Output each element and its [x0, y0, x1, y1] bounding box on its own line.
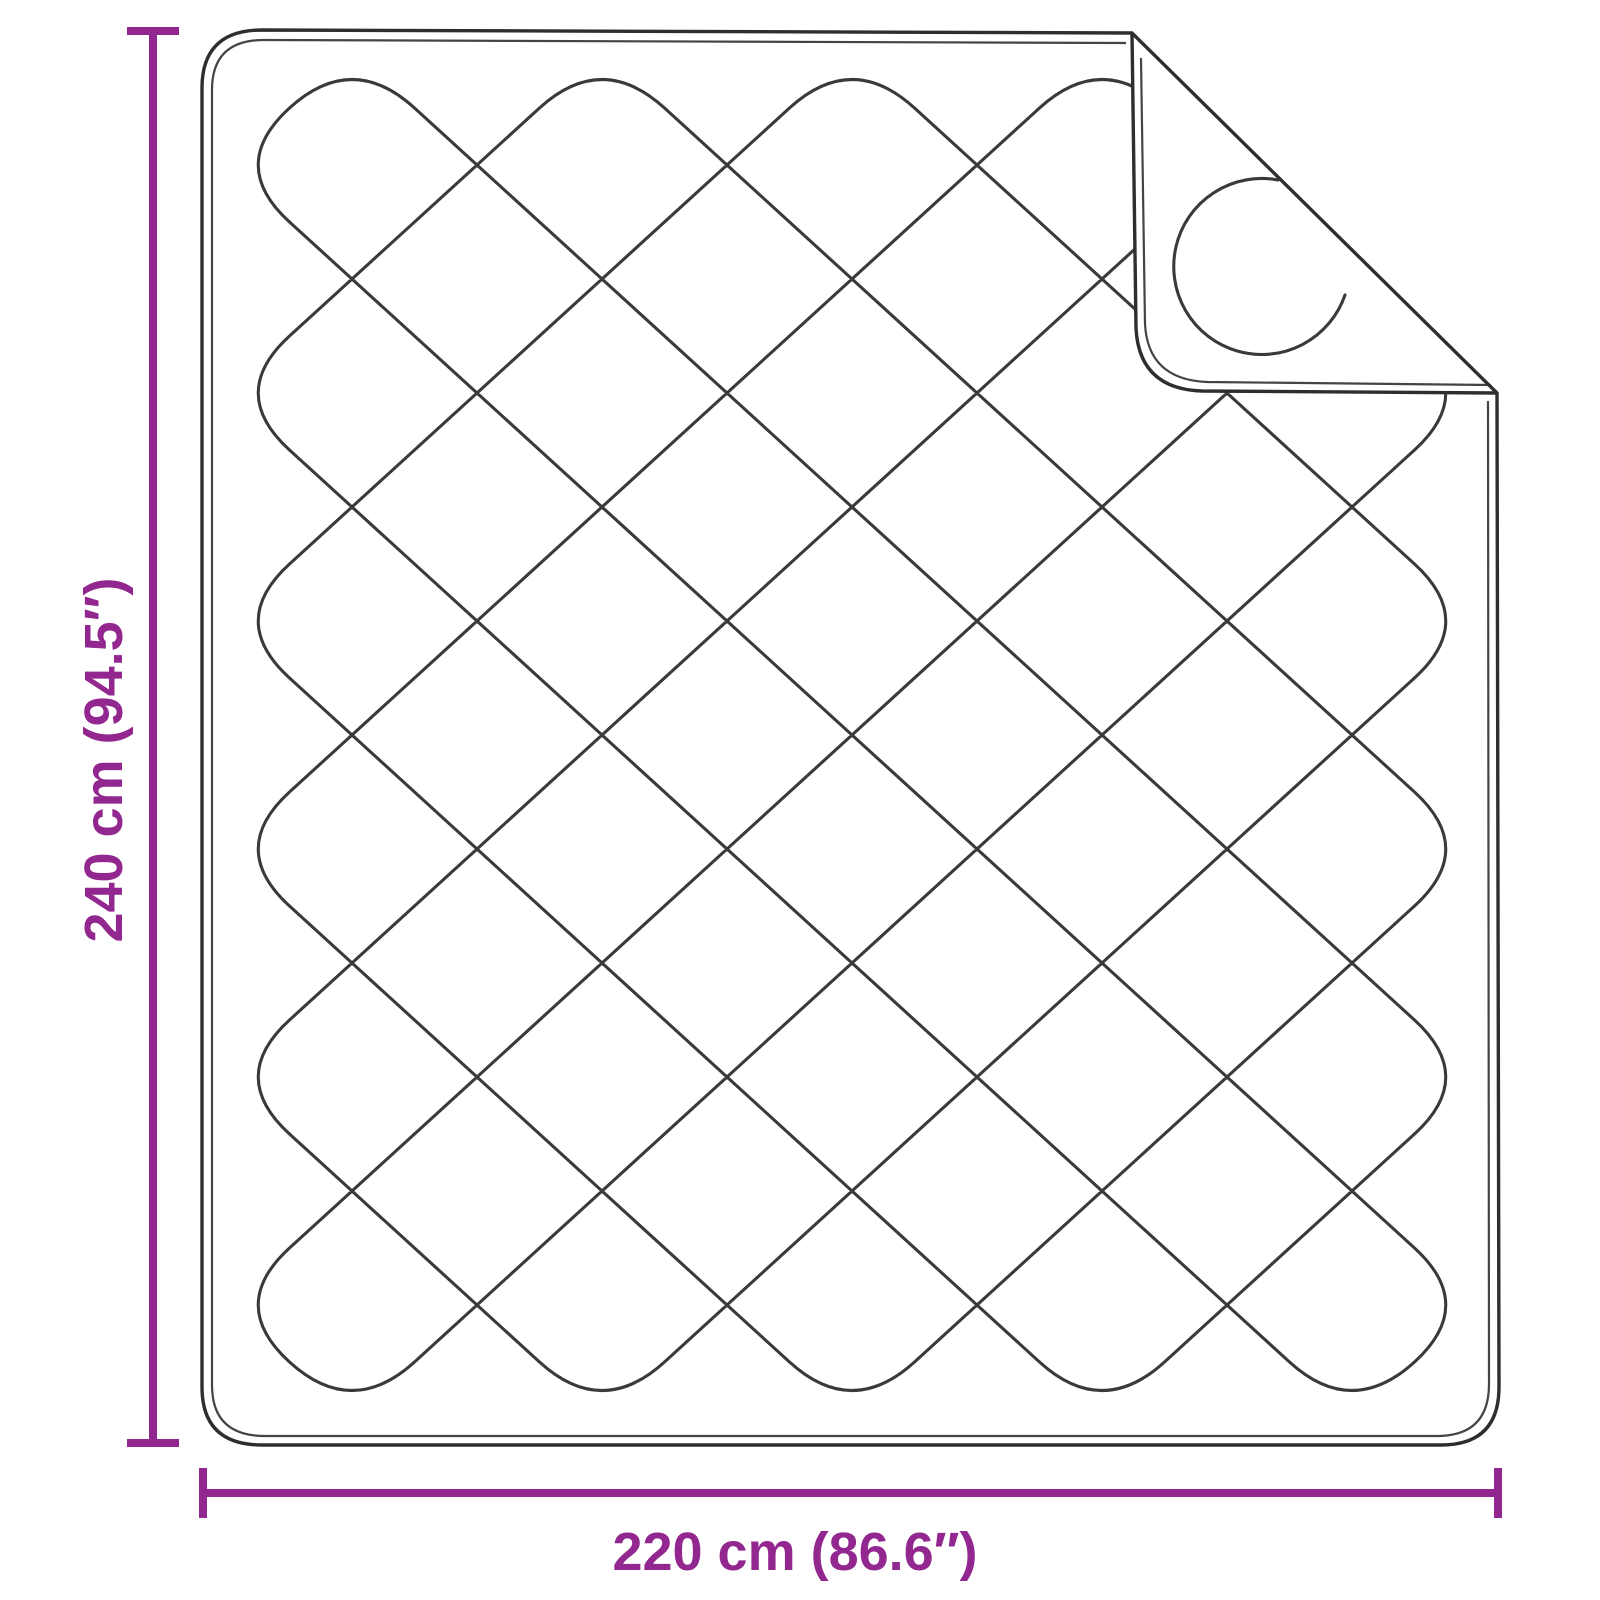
- width-dimension-label: 220 cm (86.6″): [612, 1522, 977, 1582]
- height-dimension-cap-top: [127, 27, 179, 35]
- width-dimension: 220 cm (86.6″): [199, 1468, 1502, 1582]
- height-dimension-line: [149, 27, 157, 1447]
- diagram-canvas: 240 cm (94.5″) 220 cm (86.6″): [0, 0, 1600, 1600]
- height-dimension-label: 240 cm (94.5″): [74, 577, 134, 942]
- width-dimension-cap-left: [199, 1468, 207, 1518]
- blanket-dimension-diagram: 240 cm (94.5″) 220 cm (86.6″): [0, 0, 1600, 1600]
- height-dimension-cap-bottom: [127, 1439, 179, 1447]
- height-dimension: 240 cm (94.5″): [74, 27, 179, 1447]
- width-dimension-cap-right: [1494, 1468, 1502, 1518]
- width-dimension-line: [203, 1489, 1498, 1497]
